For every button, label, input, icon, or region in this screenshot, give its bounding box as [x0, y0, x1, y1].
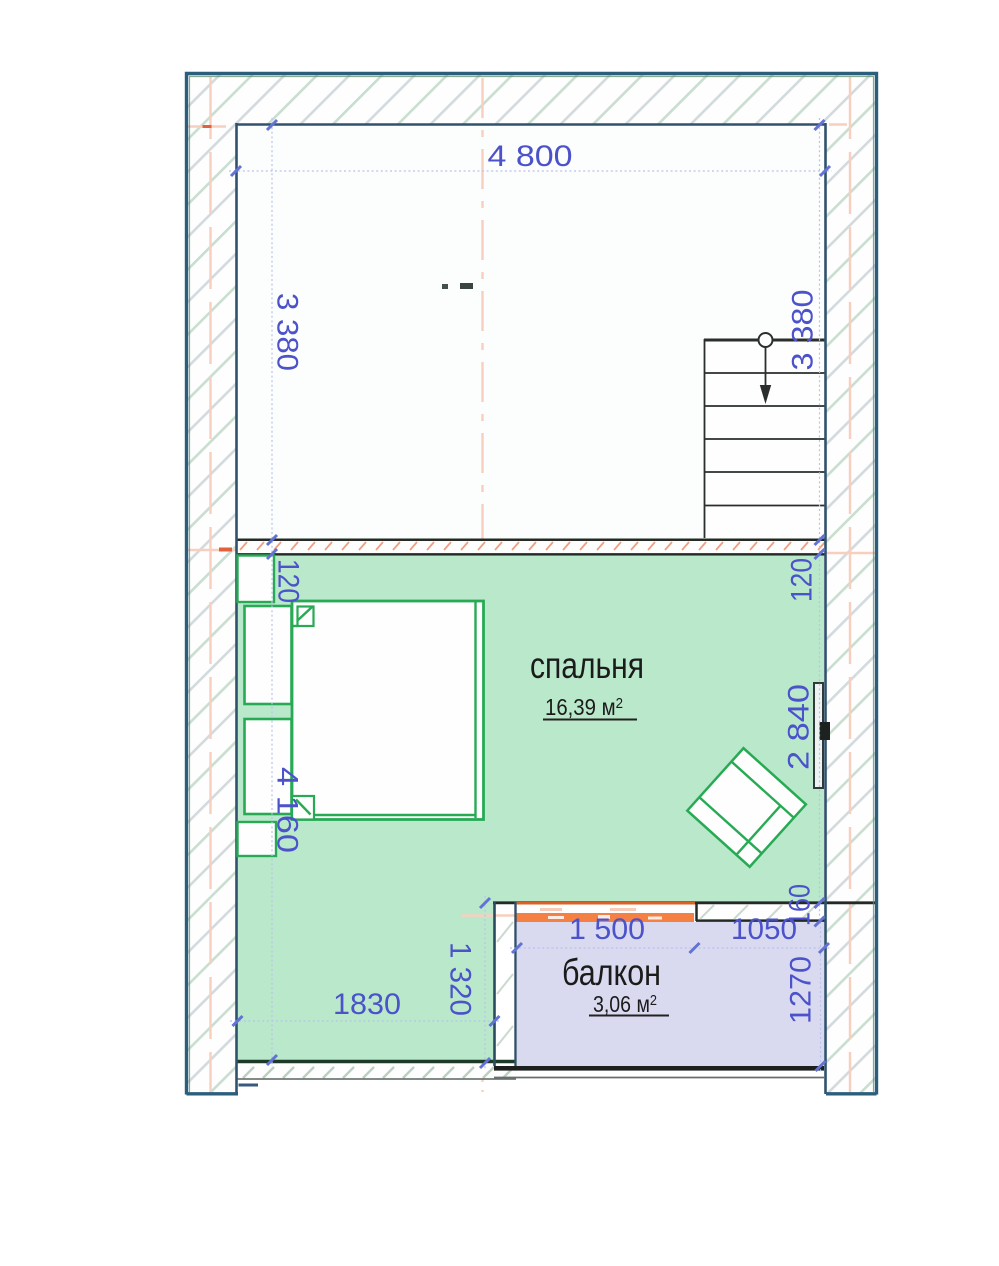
svg-text:120: 120 — [786, 558, 819, 602]
svg-text:4 160: 4 160 — [271, 767, 304, 853]
svg-text:1830: 1830 — [333, 988, 401, 1021]
svg-text:3 380: 3 380 — [787, 290, 820, 371]
svg-text:16,39 м2: 16,39 м2 — [545, 694, 623, 720]
svg-text:1270: 1270 — [785, 956, 818, 1024]
svg-text:3 380: 3 380 — [271, 293, 304, 371]
svg-text:1 500: 1 500 — [569, 913, 645, 946]
svg-text:160: 160 — [784, 884, 817, 926]
svg-text:3,06 м2: 3,06 м2 — [593, 991, 657, 1017]
svg-text:4 800: 4 800 — [488, 140, 573, 173]
svg-text:спальня: спальня — [530, 645, 644, 686]
svg-text:2 840: 2 840 — [783, 684, 816, 770]
svg-text:120: 120 — [272, 559, 305, 603]
svg-text:1 320: 1 320 — [444, 942, 477, 1016]
svg-text:балкон: балкон — [562, 952, 661, 993]
